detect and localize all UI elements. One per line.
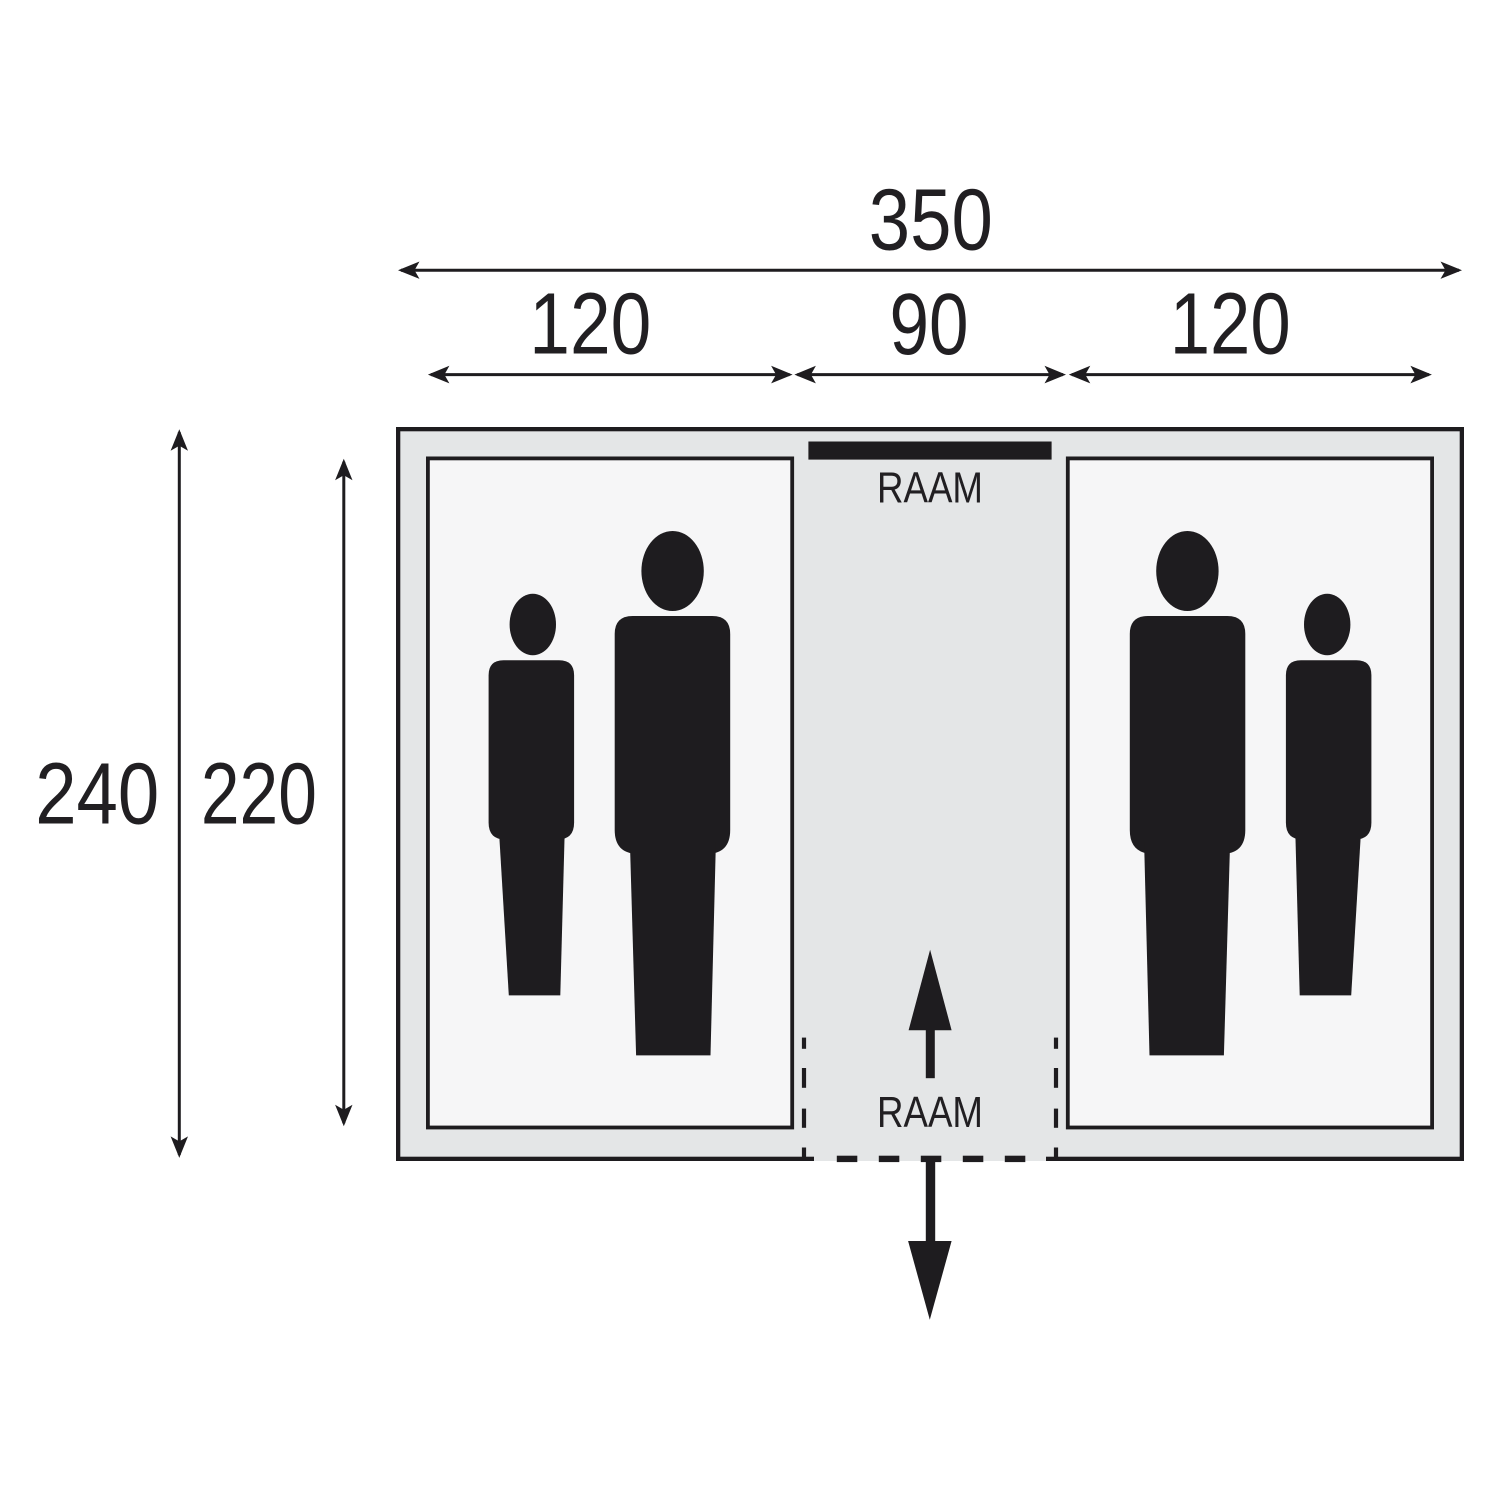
svg-text:120: 120: [529, 275, 651, 372]
svg-text:RAAM: RAAM: [877, 1089, 983, 1137]
svg-text:RAAM: RAAM: [877, 465, 983, 513]
svg-text:240: 240: [35, 746, 159, 843]
svg-text:120: 120: [1170, 275, 1291, 372]
svg-text:90: 90: [890, 276, 969, 373]
svg-text:350: 350: [869, 172, 993, 269]
svg-text:220: 220: [201, 746, 317, 843]
